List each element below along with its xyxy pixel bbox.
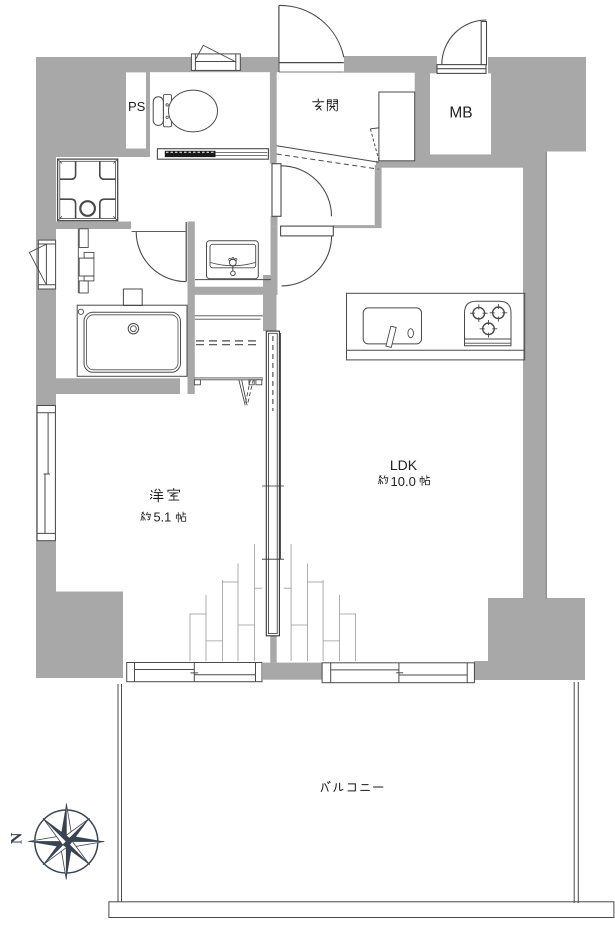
svg-text:LDK: LDK	[390, 457, 418, 473]
svg-text:PS: PS	[128, 99, 146, 114]
svg-text:MB: MB	[449, 105, 472, 122]
svg-text:10.0: 10.0	[391, 474, 416, 489]
svg-text:5.1: 5.1	[154, 510, 172, 525]
svg-text:N: N	[8, 832, 25, 844]
